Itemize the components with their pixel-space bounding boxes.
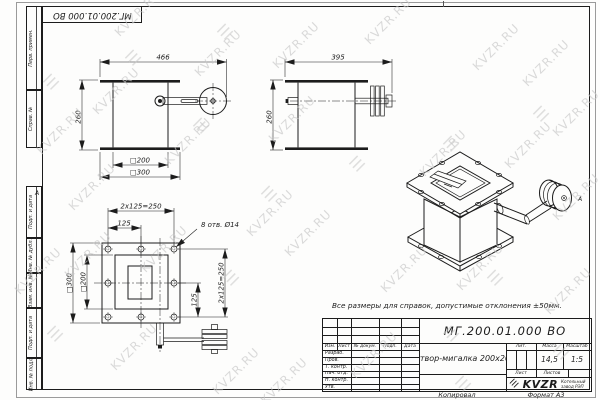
scale-label: Масштаб <box>563 343 591 350</box>
kvzr-logo-icon: ☰ <box>509 378 522 391</box>
view-front: 466 260 □200 □300 <box>75 54 232 181</box>
col-sign: Подп. <box>379 343 401 350</box>
part-name: Затвор-мигалка 200x200 <box>419 343 506 374</box>
mass-label: Масса <box>536 343 563 350</box>
dim-front-total-width: 466 <box>156 54 170 62</box>
dim-front-inner: □200 <box>130 157 151 165</box>
mass-value: 14,5 <box>536 350 563 369</box>
lit-label: Лит. <box>506 343 536 350</box>
dim-side-total-width: 395 <box>331 54 345 62</box>
title-designation: МГ.200.01.000 ВО <box>419 319 591 343</box>
sheet-label: Лист <box>506 369 536 377</box>
drawing-sheet: KVZR.RUKVZR.RUKVZR.RUKVZR.RUKVZR.RUKVZR.… <box>0 0 600 400</box>
dim-flange-bolt-col: 2x125=250 <box>218 262 226 304</box>
company-cell: ☰ KVZR Котельный завод РЭП <box>506 377 591 391</box>
view-isometric <box>407 152 572 271</box>
sheets-label: Листов <box>536 369 568 377</box>
dim-flange-bolt-row: 2x125=250 <box>120 203 162 211</box>
kvzr-logo-text: KVZR <box>523 378 558 391</box>
dim-flange-outer: □300 <box>66 272 74 293</box>
footer-copied: Копировал <box>412 391 502 399</box>
row-approved: Утв. <box>323 384 353 391</box>
col-date: Дата <box>401 343 419 350</box>
scale-value: 1:5 <box>563 350 591 369</box>
dim-flange-inner: □200 <box>80 271 88 292</box>
view-side: 395 260 <box>266 54 399 151</box>
dim-flange-bolt-half-v: 125 <box>191 293 199 307</box>
dim-flange-bolt-half: 125 <box>117 220 131 228</box>
col-izm: Изм. <box>323 343 337 350</box>
dim-side-height: 260 <box>266 110 274 124</box>
company-name: Котельный завод РЭП <box>561 379 585 389</box>
title-block: Изм. Лист № докум. Подп. Дата Разраб. Пр… <box>322 318 592 392</box>
row-ncontrol: Н. контр. <box>323 377 353 384</box>
dim-front-outer: □300 <box>130 169 151 177</box>
row-checked: Пров. <box>323 357 353 364</box>
dim-front-height: 260 <box>75 110 83 124</box>
footer-format: Формат А3 <box>510 391 582 399</box>
reference-note: Все размеры для справок, допустимые откл… <box>332 301 562 310</box>
row-tcontrol: Т. контр. <box>323 364 353 371</box>
row-developed: Разраб. <box>323 350 353 357</box>
holes-note: 8 отв. Ø14 <box>201 221 239 229</box>
col-doc: № докум. <box>351 343 379 350</box>
row-dept-head: Нач. отд. <box>323 371 353 378</box>
view-flange: 2x125=250 125 8 отв. Ø14 □300 □200 125 2… <box>66 203 240 354</box>
col-list: Лист <box>337 343 351 350</box>
